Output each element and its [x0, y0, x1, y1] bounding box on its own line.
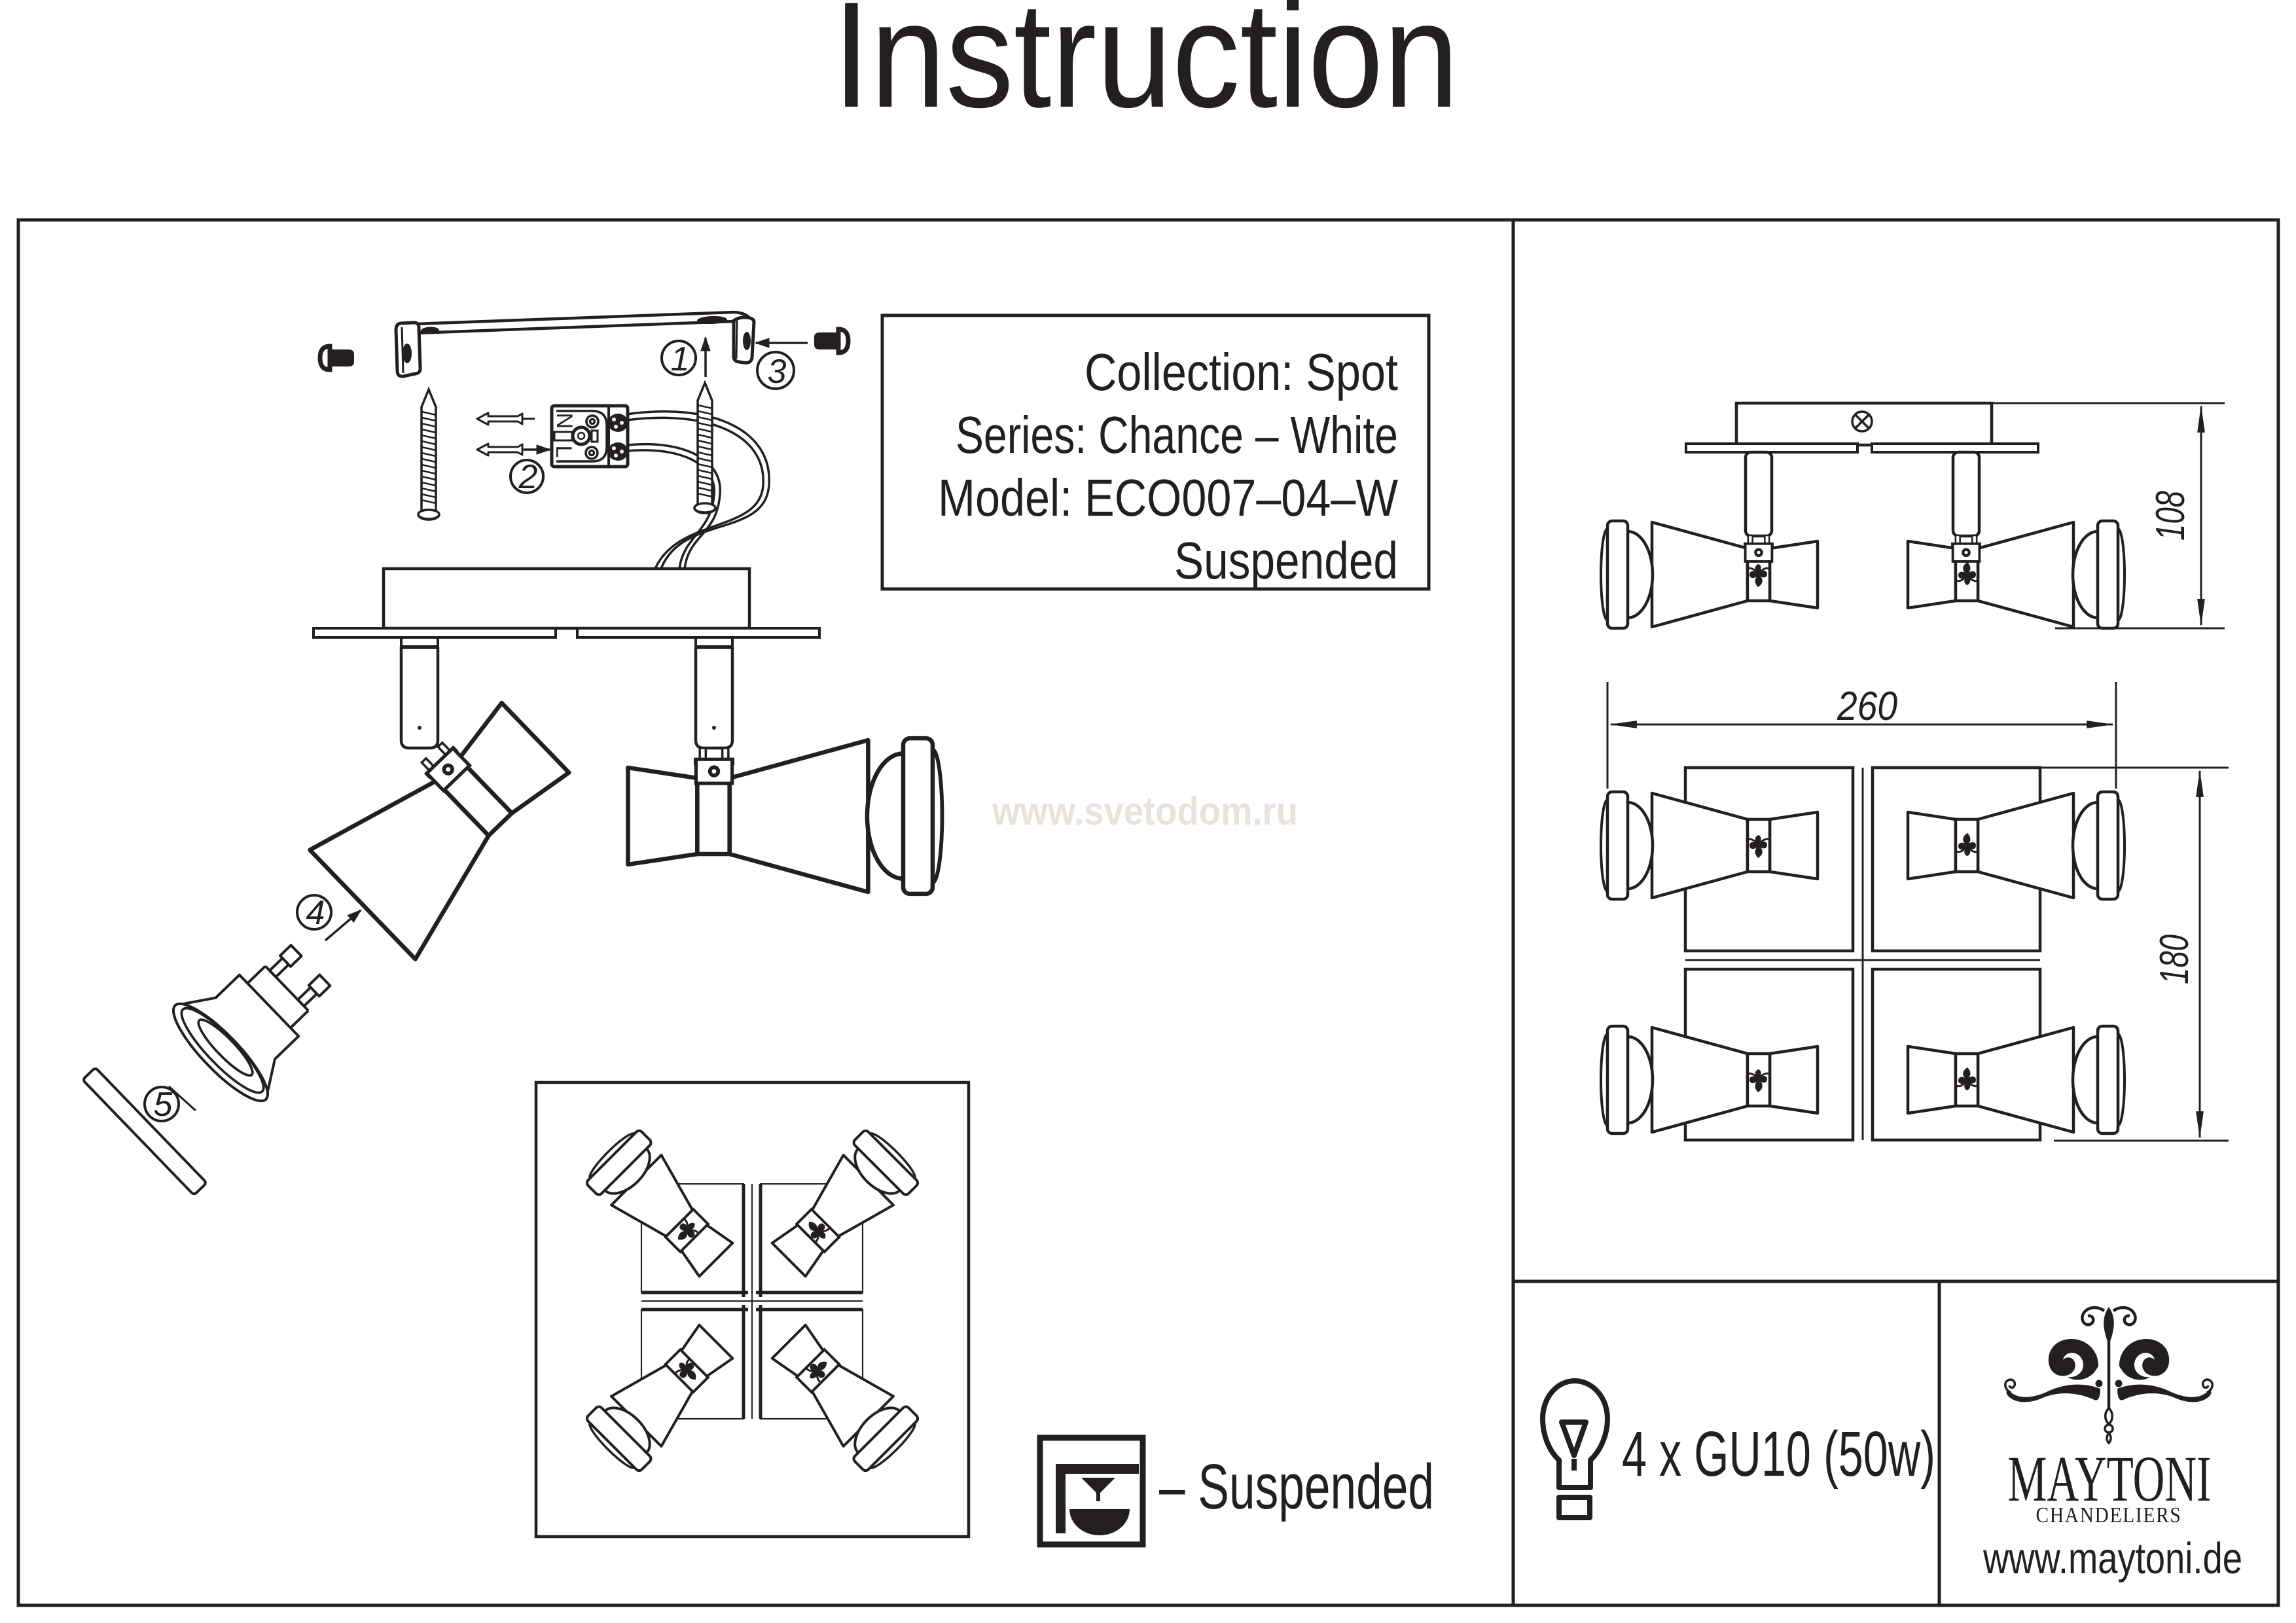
svg-text:– Suspended: – Suspended — [1159, 1451, 1434, 1522]
svg-text:2: 2 — [518, 458, 538, 496]
svg-text:Instruction: Instruction — [833, 0, 1459, 139]
svg-text:180: 180 — [2152, 935, 2197, 984]
svg-text:www.maytoni.de: www.maytoni.de — [1982, 1534, 2242, 1583]
svg-text:1: 1 — [671, 340, 690, 378]
svg-text:4 x GU10 (50w): 4 x GU10 (50w) — [1622, 1418, 1935, 1489]
svg-text:Suspended: Suspended — [1174, 531, 1398, 590]
svg-text:Collection: Spot: Collection: Spot — [1085, 343, 1398, 401]
svg-text:3: 3 — [768, 353, 787, 391]
svg-text:Series: Chance – White: Series: Chance – White — [956, 406, 1398, 464]
svg-text:N: N — [552, 413, 577, 429]
svg-text:Model: ECO007–04–W: Model: ECO007–04–W — [938, 469, 1398, 527]
svg-text:L: L — [551, 446, 576, 458]
svg-text:108: 108 — [2148, 491, 2193, 541]
svg-text:4: 4 — [306, 894, 325, 932]
svg-text:CHANDELIERS: CHANDELIERS — [2036, 1503, 2182, 1527]
svg-text:260: 260 — [1837, 684, 1897, 729]
svg-text:5: 5 — [154, 1086, 173, 1124]
svg-text:www.svetodom.ru: www.svetodom.ru — [992, 789, 1298, 833]
